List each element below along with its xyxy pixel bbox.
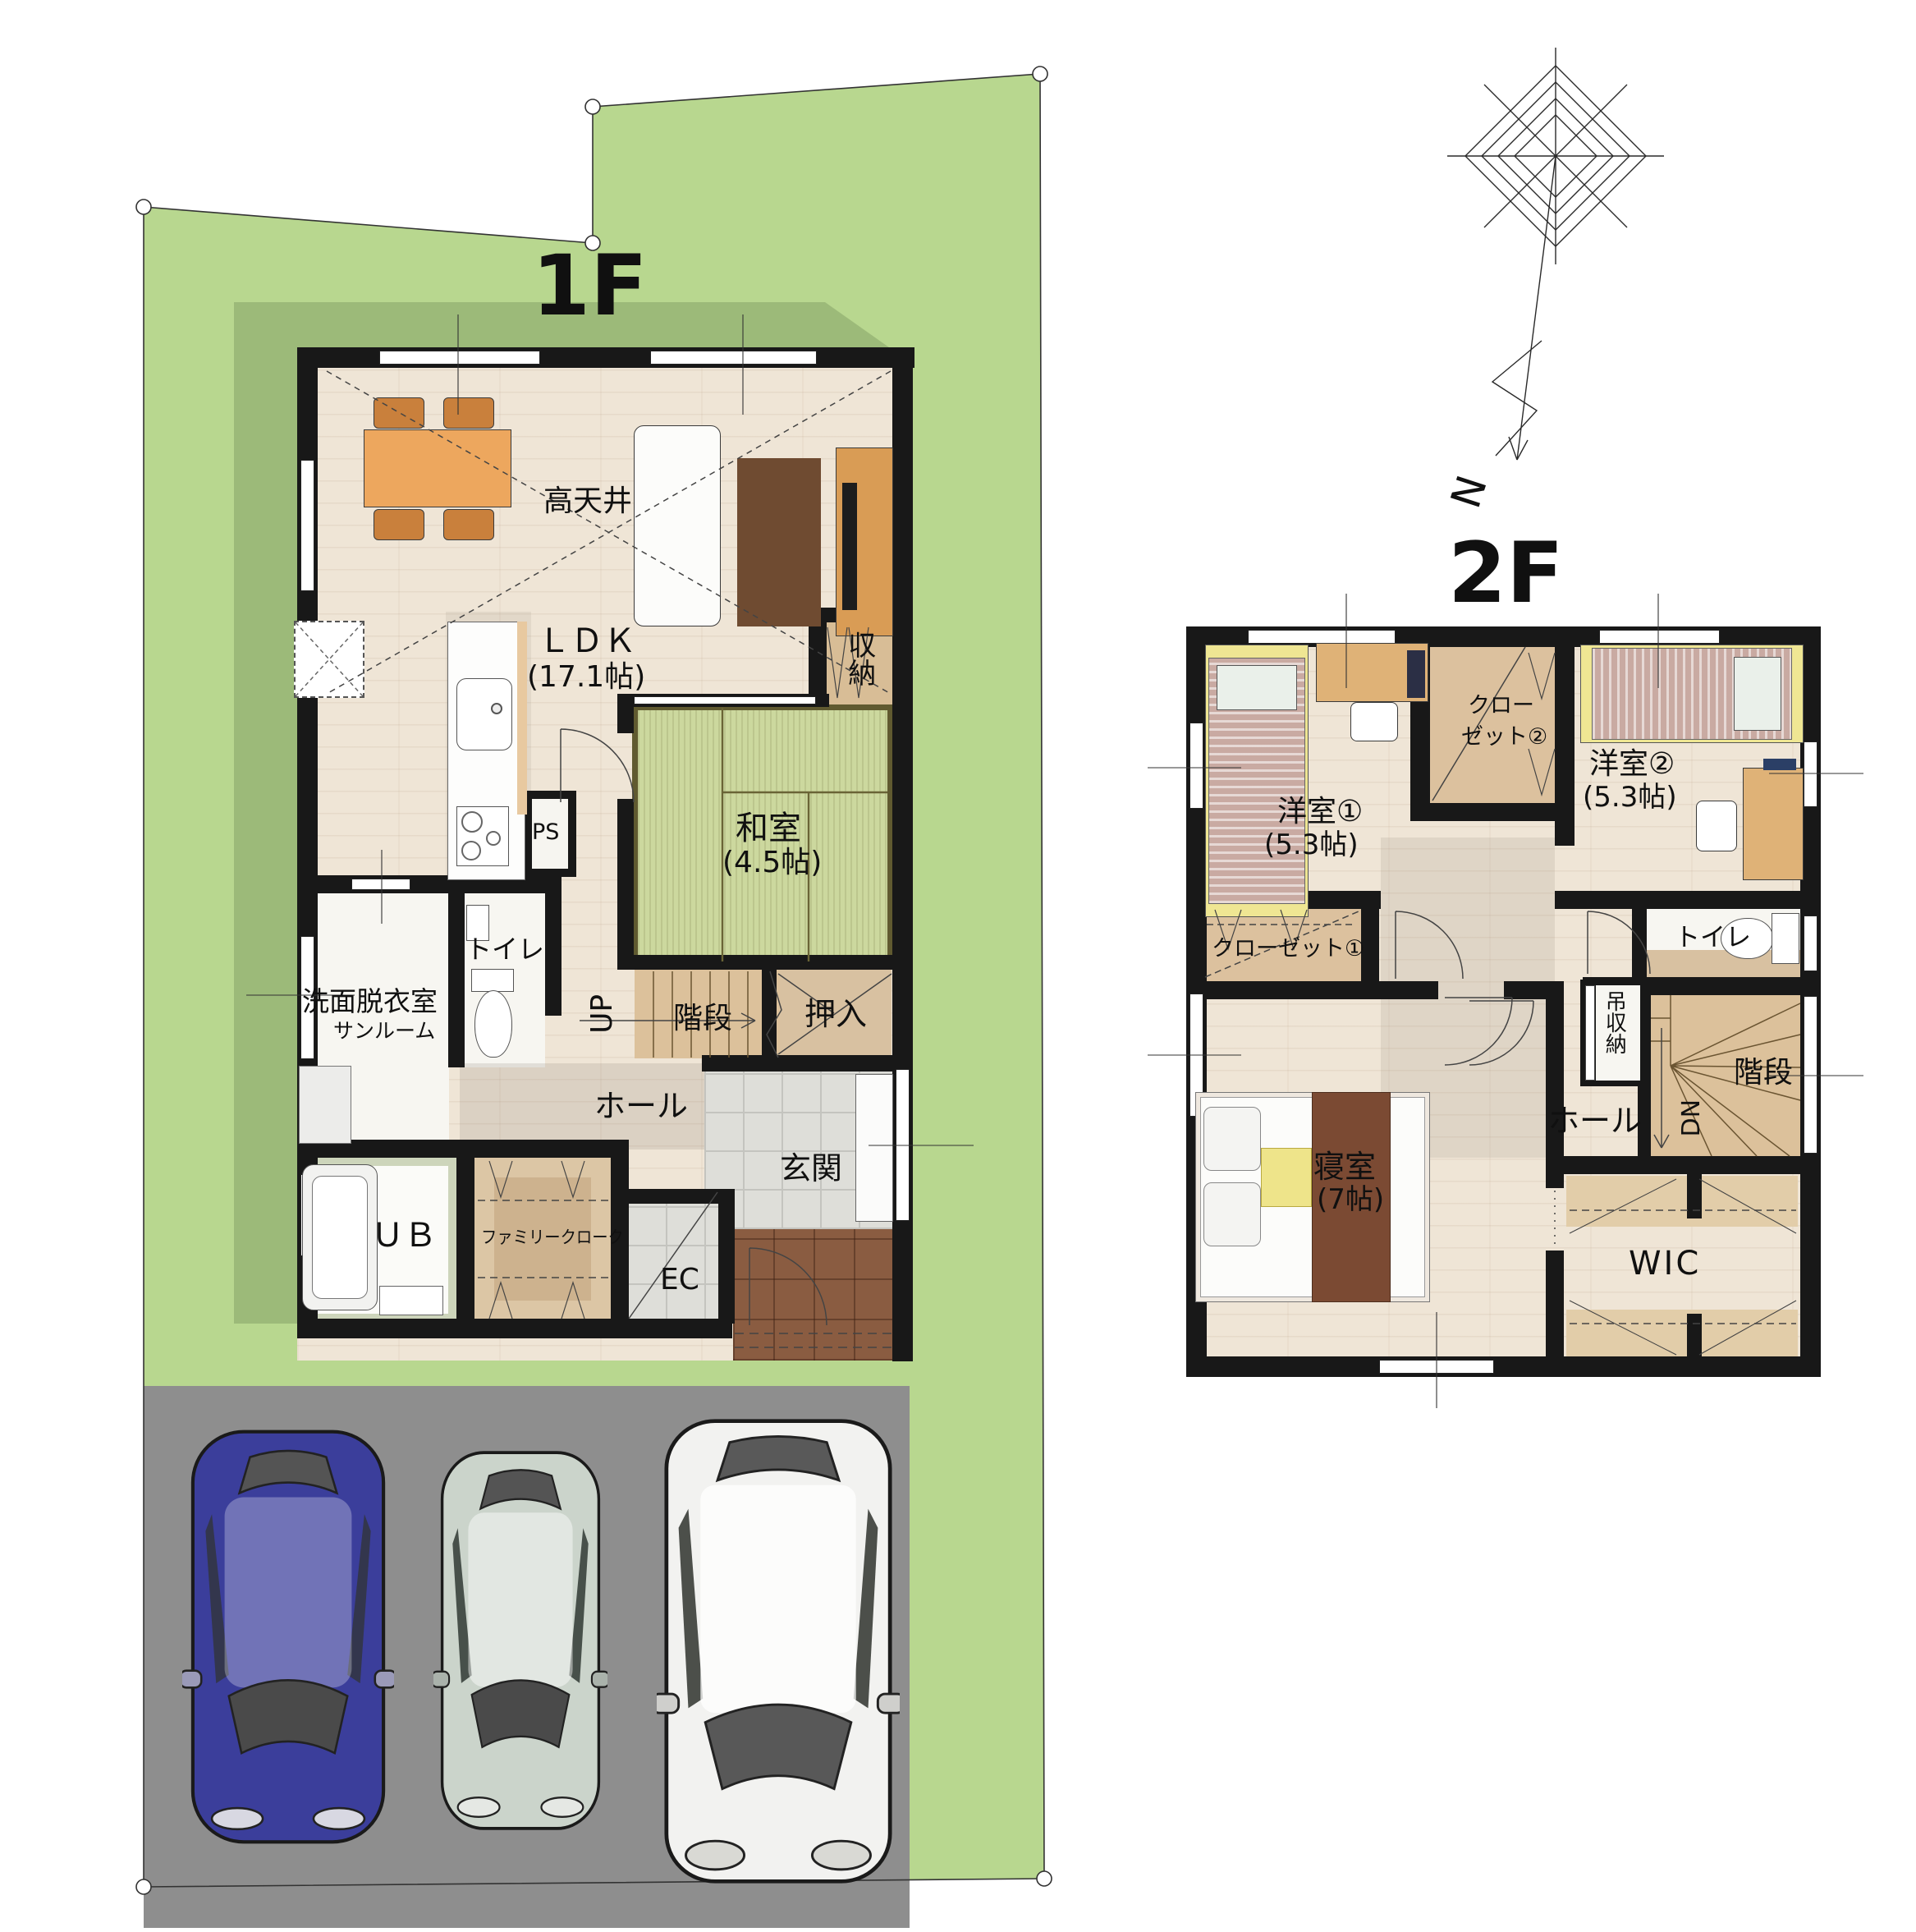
label-ec: EC	[660, 1264, 699, 1296]
label-genkan: 玄関	[780, 1153, 842, 1186]
label-closet1: クローゼット①	[1212, 938, 1364, 961]
compass-n: N	[1442, 470, 1497, 513]
label-closet2-line1: クロー	[1468, 695, 1534, 718]
label-stairs2: 階段	[1734, 1058, 1793, 1089]
label-oshiire: 押入	[804, 998, 867, 1031]
floor2-title: 2F	[1448, 530, 1564, 617]
label-hall2: ホール	[1548, 1105, 1642, 1138]
label-yoshitsu1-size: (5.3帖)	[1264, 831, 1359, 860]
label-ps: PS	[532, 821, 559, 844]
label-ldk-size: (17.1帖)	[527, 662, 645, 693]
label-family-cloak: ファミリークローク	[481, 1228, 624, 1246]
car-blue	[182, 1425, 394, 1848]
label-yoshitsu2: 洋室②	[1589, 749, 1675, 780]
label-bedroom-size: (7帖)	[1317, 1186, 1384, 1215]
label-toilet2: トイレ	[1675, 925, 1751, 952]
f1-lines	[246, 314, 974, 1347]
label-tsurishuno: 吊収納	[1602, 990, 1625, 1076]
car-white	[657, 1414, 900, 1888]
label-ub: ＵＢ	[371, 1218, 437, 1253]
label-stairs1: 階段	[673, 1003, 732, 1035]
label-yoshitsu1: 洋室①	[1277, 796, 1363, 828]
floor1-title: 1F	[532, 242, 648, 330]
label-closet2-line2: ゼット②	[1461, 726, 1547, 749]
label-sunroom: サンルーム	[333, 1021, 435, 1042]
label-bedroom: 寝室	[1313, 1151, 1376, 1184]
label-wic: WIC	[1629, 1246, 1701, 1281]
label-ldk: ＬＤＫ	[538, 624, 636, 659]
car-silver	[433, 1447, 607, 1834]
label-washitsu: 和室	[736, 811, 801, 846]
label-yoshitsu2-size: (5.3帖)	[1583, 783, 1677, 813]
label-dn: DN	[1679, 1099, 1705, 1137]
label-senmen: 洗面脱衣室	[302, 988, 438, 1016]
label-washitsu-size: (4.5帖)	[722, 847, 822, 879]
label-toilet1: トイレ	[465, 936, 545, 964]
label-high-ceiling: 高天井	[543, 486, 632, 517]
label-up: UP	[587, 994, 618, 1034]
label-shunou: 収納	[844, 631, 873, 704]
label-hall1: ホール	[594, 1090, 688, 1123]
north-compass-icon: N	[1442, 48, 1664, 514]
site-plan-canvas: N	[0, 0, 1916, 1932]
